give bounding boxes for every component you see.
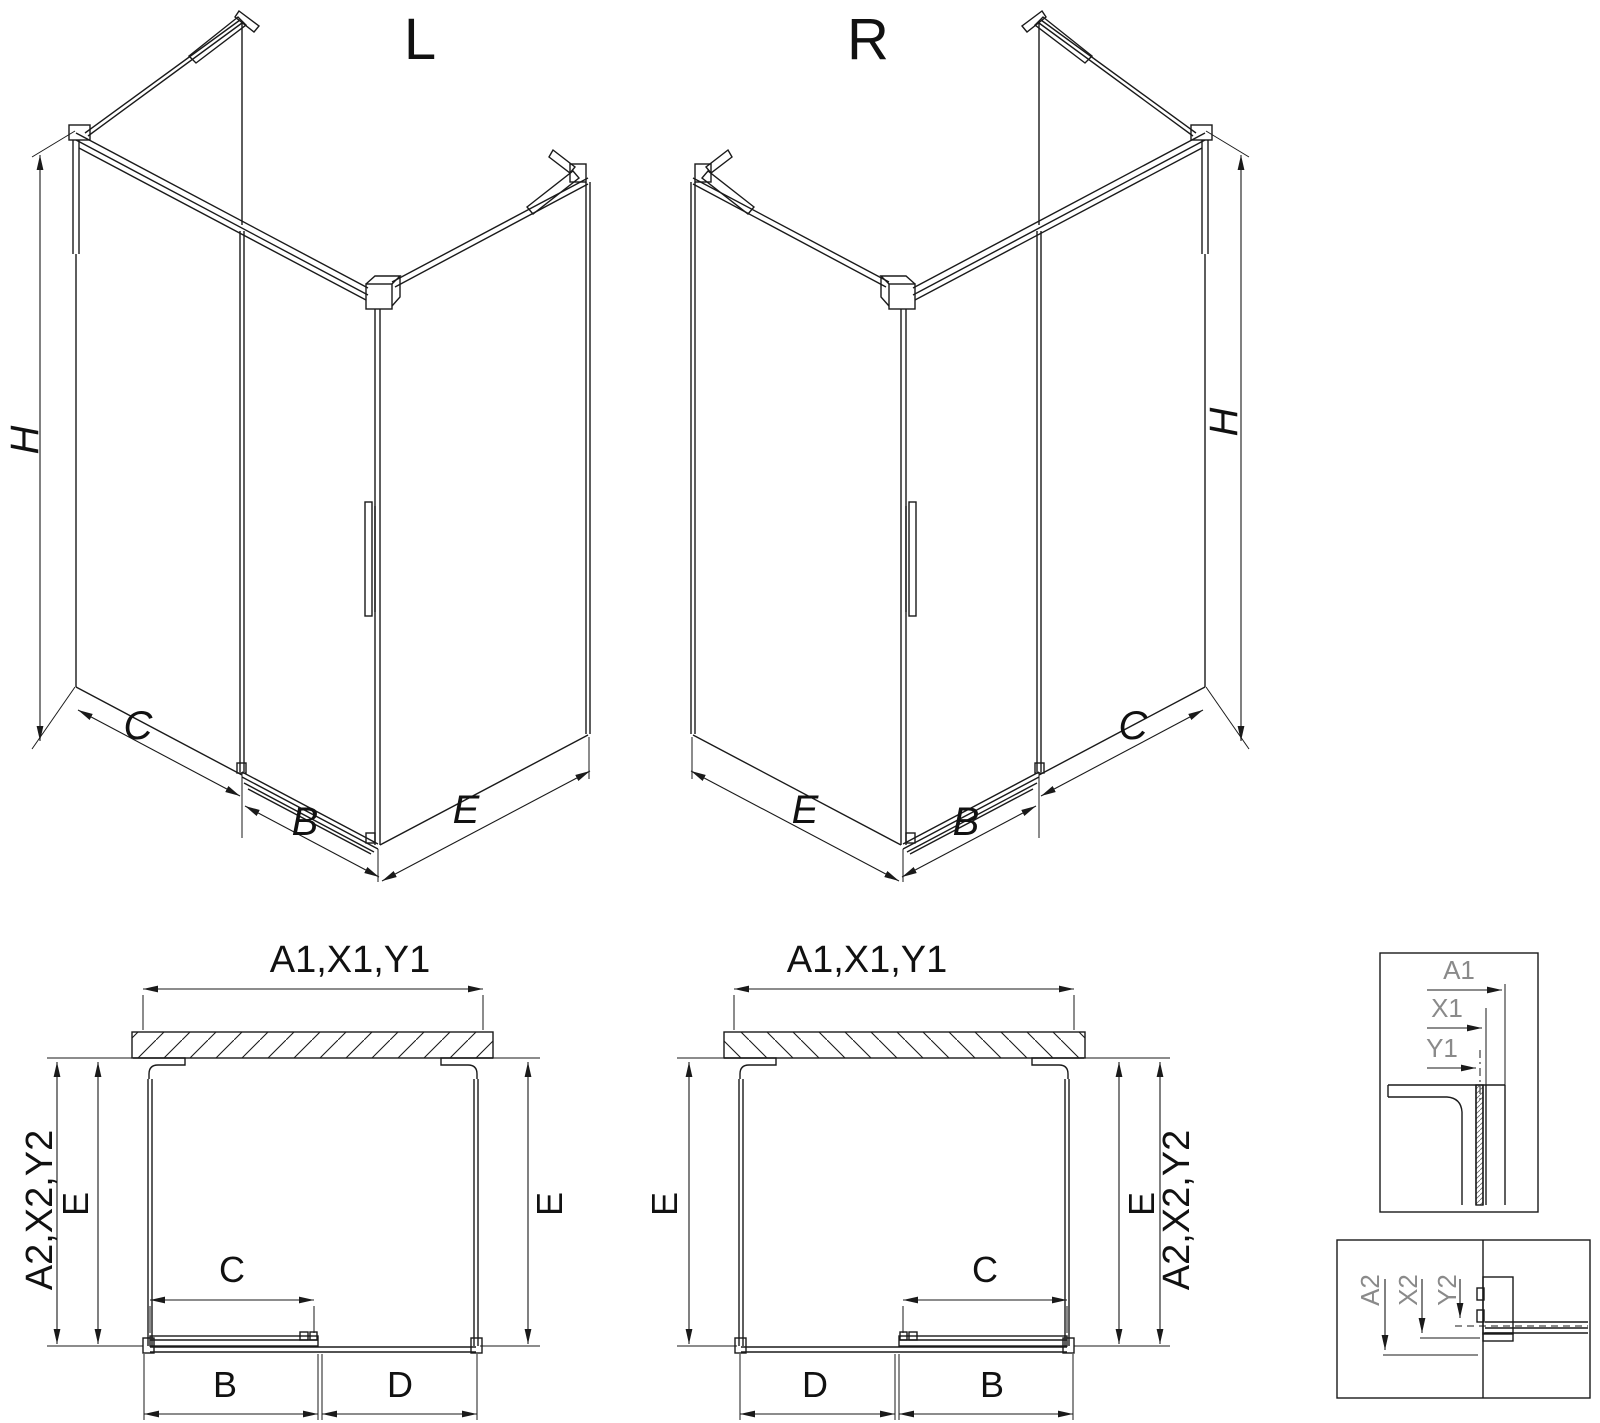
plan-view-left: [47, 989, 540, 1420]
dim-label-height-left: H: [3, 410, 47, 470]
plan-middle-c-label: C: [965, 1250, 1005, 1290]
iso-right-view-label: R: [838, 8, 898, 72]
detail-a1-label: A1: [1434, 956, 1484, 985]
plan-middle-width-label: A1,X1,Y1: [757, 940, 977, 982]
detail-box-a1: [1380, 953, 1538, 1212]
dim-label-height-right: H: [1202, 392, 1246, 452]
dim-label-side-right: E: [785, 788, 825, 832]
iso-left-view-label: L: [390, 8, 450, 72]
plan-left-c-label: C: [212, 1250, 252, 1290]
plan-view-middle: [677, 989, 1170, 1420]
detail-x1-label: X1: [1422, 994, 1472, 1023]
plan-middle-d-label: D: [795, 1365, 835, 1405]
plan-middle-e-left-label: E: [645, 1184, 685, 1224]
iso-view-left: [32, 11, 590, 882]
iso-view-right: [691, 11, 1249, 882]
dim-label-fixed-right: C: [1113, 704, 1153, 748]
plan-left-depth-side-label: A2,X2,Y2: [20, 1085, 60, 1335]
dim-label-side-left: E: [446, 788, 486, 832]
detail-y2-label: Y2: [1433, 1260, 1465, 1320]
plan-left-d-label: D: [380, 1365, 420, 1405]
technical-drawing-page: L H C B E R H E B C A1,X1,Y1 A2,X2,Y2 E …: [0, 0, 1600, 1423]
plan-left-b-label: B: [205, 1365, 245, 1405]
plan-left-e-right-label: E: [530, 1184, 570, 1224]
plan-left-width-label: A1,X1,Y1: [240, 940, 460, 982]
detail-x2-label: X2: [1394, 1260, 1426, 1320]
detail-a2-label: A2: [1356, 1260, 1388, 1320]
dim-label-door-left: B: [285, 800, 325, 844]
dim-label-fixed-left: C: [118, 704, 158, 748]
detail-y1-label: Y1: [1417, 1034, 1467, 1063]
technical-drawing-canvas: [0, 0, 1600, 1423]
plan-middle-b-label: B: [972, 1365, 1012, 1405]
plan-middle-depth-side-label: A2,X2,Y2: [1157, 1085, 1197, 1335]
plan-left-e-left-label: E: [56, 1184, 96, 1224]
dim-label-door-right: B: [946, 800, 986, 844]
